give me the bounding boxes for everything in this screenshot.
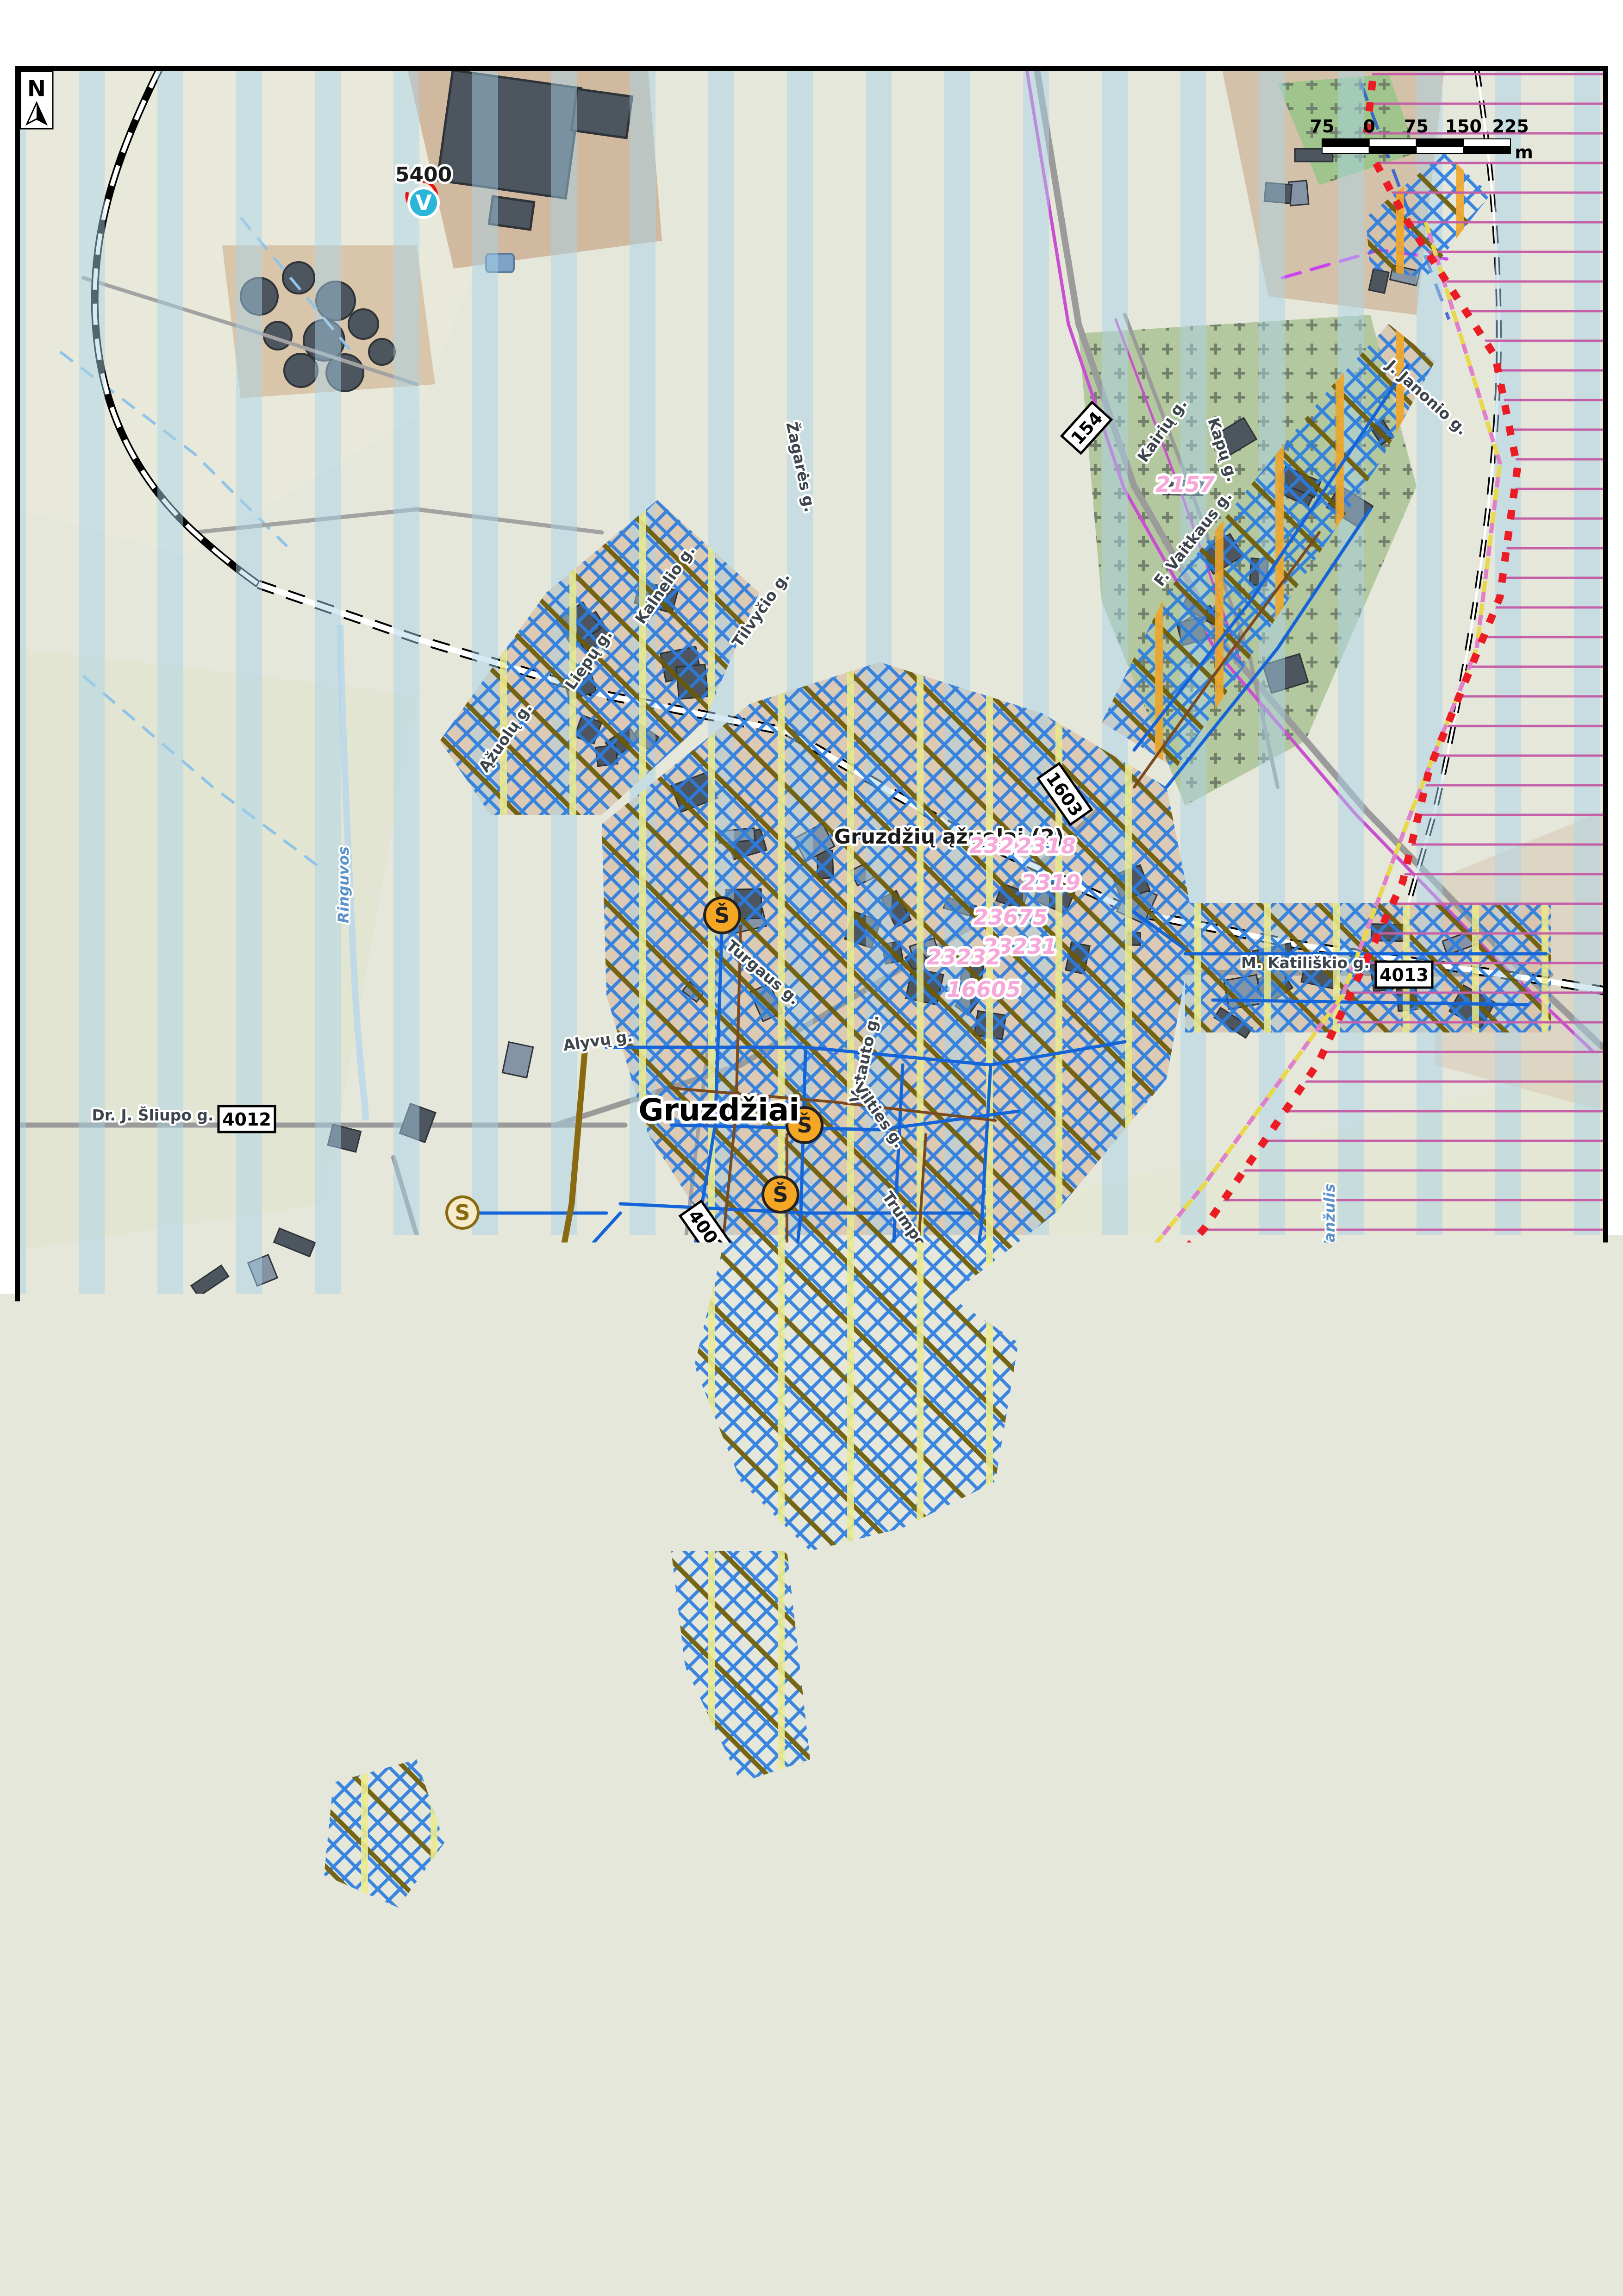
north-arrow: N — [20, 71, 53, 129]
marker-brown-n: N — [762, 2060, 791, 2090]
svg-text:S: S — [316, 1816, 331, 1841]
settlement-label-gruzdziai-east: Gruzdžiai — [1333, 1720, 1436, 1746]
marker-cyan-v: V — [409, 188, 438, 218]
marker-orange-š: Š — [763, 1177, 798, 1212]
street-label: Dr. J. Šliupo g. — [92, 1106, 213, 1124]
heritage-number: 11188 — [212, 1769, 287, 1794]
heritage-number: 23385 — [98, 1865, 172, 1890]
marker-orange-š: Š — [705, 898, 740, 933]
heritage-number: 2157 — [1155, 472, 1215, 497]
marker-orange-š: Š — [362, 1904, 397, 1939]
scale-tick: 75 — [1310, 116, 1335, 137]
marker-blue-v: V — [529, 1745, 562, 1778]
scale-tick: 75 — [1404, 116, 1429, 137]
svg-text:Š: Š — [773, 1182, 788, 1207]
svg-text:Š: Š — [372, 1909, 387, 1934]
biosphere-label: Gubernijos miško biosferos poligonas — [1102, 1840, 1533, 1864]
heritage-number: 23374 — [234, 1811, 308, 1836]
heritage-number: 23365 — [74, 1611, 148, 1636]
scale-unit: m — [1515, 142, 1533, 163]
marker-cream-s: S — [899, 1564, 931, 1595]
svg-text:N: N — [768, 2063, 786, 2088]
heritage-number: 23383 — [124, 1944, 198, 1969]
svg-text:S: S — [907, 1567, 923, 1592]
site-number-4218: 4218 — [523, 1720, 580, 1744]
river-label: Ringuvos — [335, 846, 352, 923]
north-letter: N — [27, 76, 46, 102]
scale-tick: 225 — [1492, 116, 1529, 137]
map-canvas: ŠŠŠSSSŠVVN 1541603400240124013 Gruzdžiai… — [0, 0, 1623, 2296]
svg-text:4013: 4013 — [1380, 965, 1429, 985]
scale-tick: 150 — [1445, 116, 1482, 137]
heritage-number: 23366 — [169, 1807, 243, 1832]
site-number-5400: 5400 — [395, 163, 452, 187]
map-interior: ŠŠŠSSSŠVVN 1541603400240124013 Gruzdžiai… — [18, 69, 1605, 2278]
scale-tick: 0 — [1363, 116, 1375, 137]
credits-line: GDB10LT © Lietuvos Respublikos žemės ūki… — [36, 2194, 535, 2213]
heritage-number: 23371 — [140, 1902, 214, 1927]
svg-text:Š: Š — [714, 903, 730, 928]
heritage-number: 2318 — [1017, 833, 1076, 858]
heritage-number: 2319 — [1021, 870, 1080, 895]
heritage-number: 23380 — [216, 1915, 290, 1940]
page-number-box: 17 — [1571, 2226, 1605, 2258]
marker-cream-s: S — [447, 1197, 478, 1228]
heritage-number: 23370 — [65, 1726, 139, 1751]
river-label: Vanžulis — [1321, 1183, 1338, 1252]
heritage-number: 23232 — [927, 945, 1001, 970]
page-number: 17 — [1573, 2230, 1604, 2256]
road-shield: 4013 — [1376, 962, 1432, 988]
svg-text:V: V — [537, 1749, 554, 1774]
heritage-number: 23368 — [139, 1679, 213, 1704]
heritage-number: 2164 — [1298, 2126, 1357, 2151]
road-shield: 4012 — [218, 1106, 275, 1132]
heritage-number: 23675 — [974, 905, 1048, 930]
heritage-number: 16605 — [947, 977, 1021, 1002]
heritage-number: 23382 — [229, 1939, 303, 1964]
marker-cream-s: S — [308, 1813, 340, 1845]
svg-text:S: S — [455, 1200, 470, 1225]
heritage-number: 23362 — [87, 1809, 162, 1834]
credits-line: ORT10LT ©Nacionalinė žemės tarnyba prie … — [36, 2213, 668, 2232]
credits-line: Duomenų šaltiniai: — [36, 2175, 184, 2193]
town-label-gruzdziai: Gruzdžiai — [638, 1092, 799, 1128]
street-label: M. Katiliškio g. — [1241, 954, 1370, 972]
heritage-number: 611 — [75, 1844, 119, 1869]
map-sheet: ŠŠŠSSSŠVVN 1541603400240124013 Gruzdžiai… — [0, 0, 1623, 2296]
svg-text:4012: 4012 — [222, 1109, 271, 1130]
credits-line: KPD, VSTT, LGT, VMT 2021 — [36, 2233, 247, 2252]
svg-text:V: V — [415, 190, 432, 215]
